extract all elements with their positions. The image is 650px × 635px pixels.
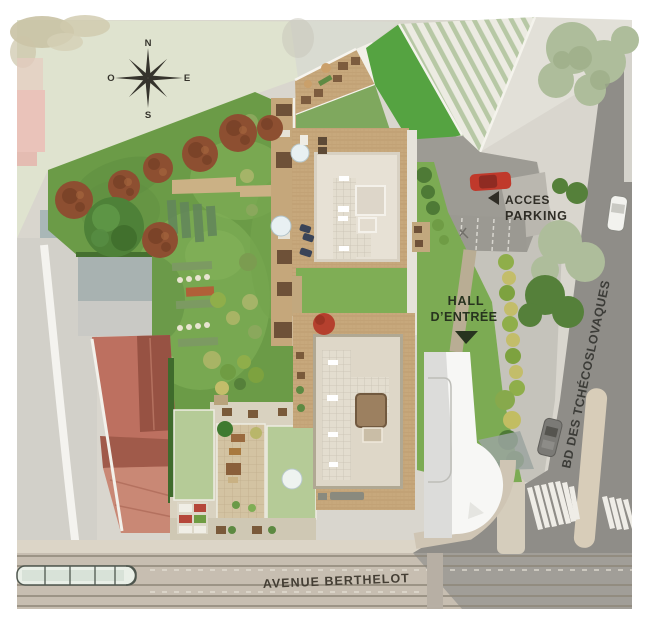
svg-text:D’ENTRÉE: D’ENTRÉE (431, 309, 498, 324)
svg-text:PARKING: PARKING (505, 209, 568, 223)
svg-text:E: E (184, 73, 190, 84)
svg-text:S: S (145, 110, 151, 121)
svg-text:N: N (145, 38, 152, 49)
svg-text:HALL: HALL (448, 294, 485, 308)
svg-text:ACCES: ACCES (505, 193, 550, 207)
svg-text:O: O (107, 73, 114, 84)
